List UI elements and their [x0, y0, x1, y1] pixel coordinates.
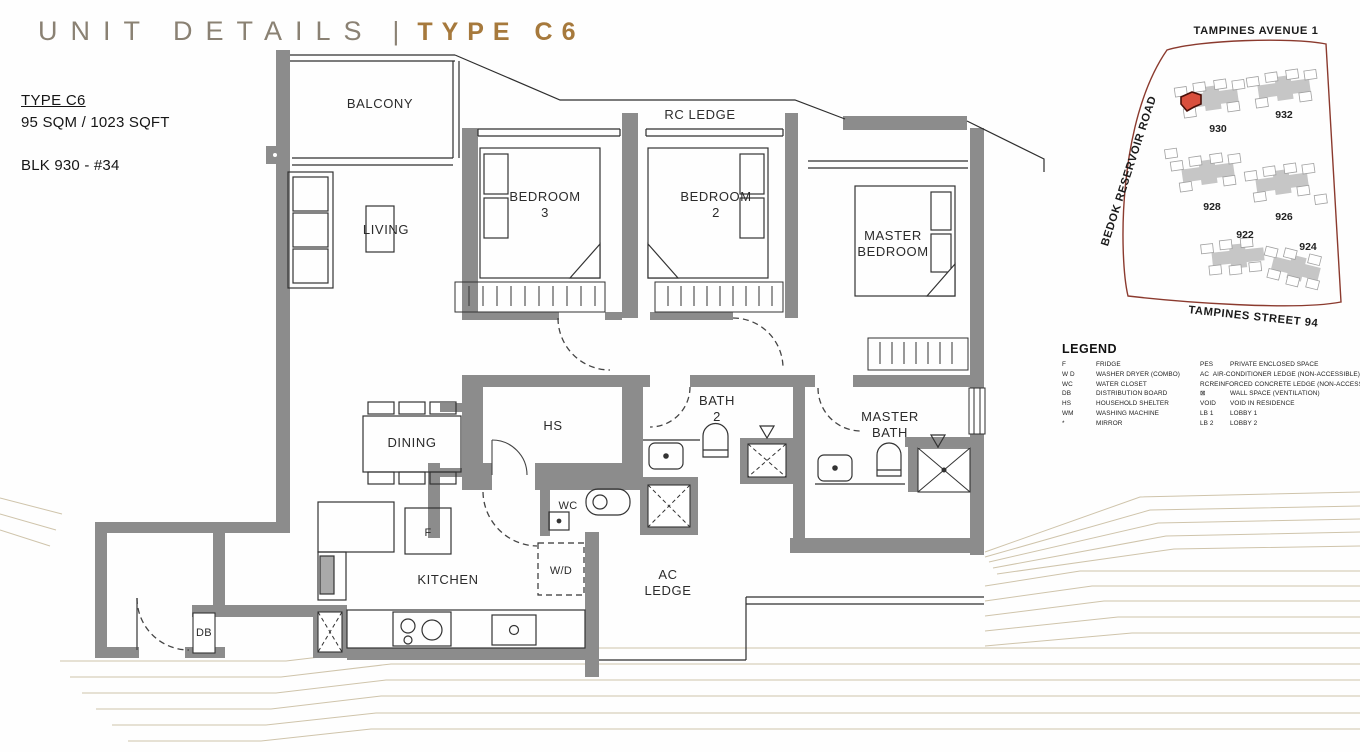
bath2-shower-head-icon	[760, 426, 774, 438]
block-label-924: 924	[1299, 241, 1317, 253]
label-kitchen: KITCHEN	[417, 572, 478, 587]
kitchen-door-arc	[483, 492, 537, 546]
label-balcony: BALCONY	[347, 96, 413, 111]
legend-row: LB 2LOBBY 2	[1200, 419, 1360, 429]
sofa-icon	[288, 172, 333, 288]
block-label-930: 930	[1209, 123, 1227, 135]
label-bedroom3-2: 3	[541, 205, 549, 220]
bath2-door-arc	[650, 387, 690, 427]
label-bedroom2-2: 2	[712, 205, 720, 220]
legend-row: WCWATER CLOSET	[1062, 380, 1190, 390]
bed2-icon	[648, 148, 768, 278]
label-bedroom2-1: BEDROOM	[680, 189, 751, 204]
legend-right-column: PESPRIVATE ENCLOSED SPACE ACAIR-CONDITIO…	[1200, 360, 1360, 429]
legend-row: ⊠WALL SPACE (VENTILATION)	[1200, 389, 1360, 399]
wc-sink-icon	[549, 512, 569, 530]
label-bath2-1: BATH	[699, 393, 735, 408]
road-label-tampines-avenue-1: TAMPINES AVENUE 1	[1194, 25, 1319, 37]
legend-row: VOIDVOID IN RESIDENCE	[1200, 399, 1360, 409]
label-bedroom3-1: BEDROOM	[509, 189, 580, 204]
legend-row: PESPRIVATE ENCLOSED SPACE	[1200, 360, 1360, 370]
label-master-bedroom-2: BEDROOM	[857, 244, 928, 259]
legend-row: *MIRROR	[1062, 419, 1190, 429]
legend: LEGEND FFRIDGE W DWASHER DRYER (COMBO) W…	[1062, 342, 1360, 429]
master-side-window	[969, 388, 985, 434]
block-cluster-926	[1244, 159, 1327, 213]
hs-door-arc	[492, 440, 527, 475]
block-label-922: 922	[1236, 229, 1254, 241]
wardrobe-bed2-icon	[655, 282, 783, 312]
bath2-toilet-icon	[703, 424, 728, 458]
block-cluster-932	[1246, 66, 1320, 108]
label-ac-ledge-2: LEDGE	[644, 583, 691, 598]
label-living: LIVING	[363, 222, 409, 237]
label-bath2-2: 2	[713, 409, 721, 424]
bed2-door-arc	[733, 318, 783, 368]
entry-door-arc	[137, 598, 189, 650]
legend-row: RCREINFORCED CONCRETE LEDGE (NON-ACCESSI…	[1200, 380, 1360, 390]
road-label-bedok-reservoir-road: BEDOK RESERVOIR ROAD	[1099, 94, 1159, 247]
label-master-bath-1: MASTER	[861, 409, 919, 424]
block-label-932: 932	[1275, 109, 1293, 121]
floorplan-brochure-page: UNIT DETAILS | TYPE C6 TYPE C6 95 SQM / …	[0, 0, 1360, 752]
label-washer-dryer: W/D	[550, 565, 572, 577]
wc-toilet-icon	[586, 489, 630, 515]
wall-junction-dot	[273, 153, 277, 157]
legend-row: LB 1LOBBY 1	[1200, 409, 1360, 419]
label-wc: WC	[559, 500, 578, 512]
block-cluster-928	[1164, 140, 1243, 194]
bed3-icon	[480, 148, 600, 278]
bath2-sink-icon	[643, 440, 700, 469]
site-map: TAMPINES AVENUE 1 BEDOK RESERVOIR ROAD T…	[1099, 25, 1341, 330]
label-db: DB	[196, 627, 212, 639]
legend-heading: LEGEND	[1062, 342, 1360, 356]
block-label-928: 928	[1203, 201, 1221, 213]
legend-row: DBDISTRIBUTION BOARD	[1062, 389, 1190, 399]
block-label-926: 926	[1275, 211, 1293, 223]
label-ac-ledge-1: AC	[658, 567, 677, 582]
label-dining: DINING	[387, 435, 436, 450]
legend-row: HSHOUSEHOLD SHELTER	[1062, 399, 1190, 409]
legend-row: W DWASHER DRYER (COMBO)	[1062, 370, 1190, 380]
legend-row: FFRIDGE	[1062, 360, 1190, 370]
label-master-bedroom-1: MASTER	[864, 228, 922, 243]
label-fridge: F	[424, 527, 431, 539]
master-bath-door-arc	[818, 388, 861, 431]
master-toilet-icon	[877, 443, 901, 476]
wardrobe-master-icon	[868, 338, 968, 370]
bed3-door-arc	[558, 318, 610, 370]
legend-row: WMWASHING MACHINE	[1062, 409, 1190, 419]
kitchen-sink-icon	[492, 615, 536, 645]
road-label-tampines-street-94: TAMPINES STREET 94	[1188, 304, 1319, 330]
plan-walls	[95, 50, 984, 677]
legend-left-column: FFRIDGE W DWASHER DRYER (COMBO) WCWATER …	[1062, 360, 1190, 429]
block-cluster-922	[1200, 236, 1265, 277]
stove-icon	[393, 612, 451, 646]
label-master-bath-2: BATH	[872, 425, 908, 440]
label-hs: HS	[543, 418, 562, 433]
label-rc-ledge: RC LEDGE	[664, 107, 735, 122]
legend-row: ACAIR-CONDITIONER LEDGE (NON-ACCESSIBLE)	[1200, 370, 1360, 380]
highlighted-unit-marker	[1181, 92, 1201, 111]
